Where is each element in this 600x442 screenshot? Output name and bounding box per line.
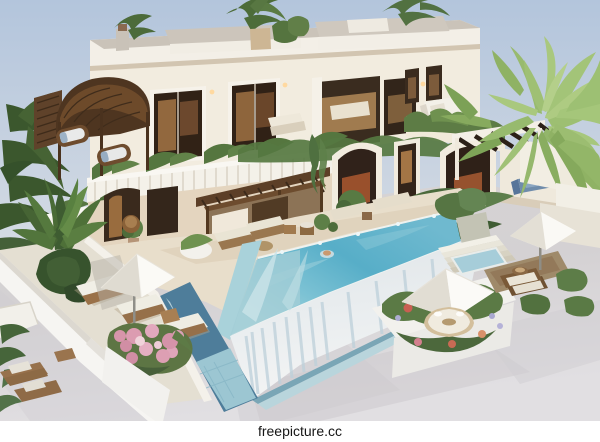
svg-text:freepicture.cc: freepicture.cc (258, 423, 342, 439)
